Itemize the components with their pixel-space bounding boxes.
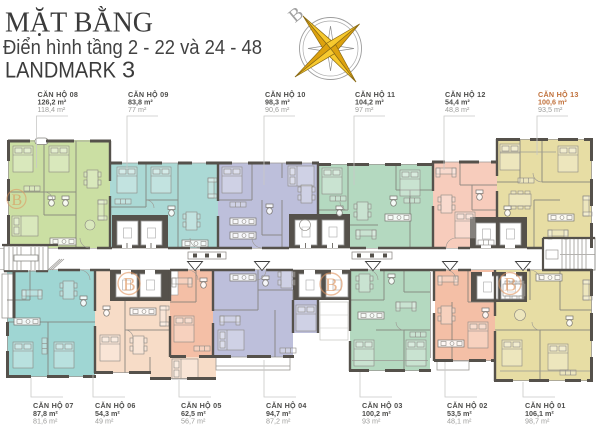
svg-text:B: B <box>325 275 338 296</box>
svg-text:93,5 m²: 93,5 m² <box>538 105 563 114</box>
svg-text:48,1 m²: 48,1 m² <box>447 417 472 426</box>
svg-text:87,2 m²: 87,2 m² <box>266 417 291 426</box>
svg-text:118,4 m²: 118,4 m² <box>38 105 66 114</box>
svg-text:93 m²: 93 m² <box>362 417 381 426</box>
svg-text:81,6 m²: 81,6 m² <box>33 417 58 426</box>
svg-text:98,7 m²: 98,7 m² <box>525 417 550 426</box>
svg-text:B: B <box>285 3 308 27</box>
svg-text:B: B <box>123 275 136 296</box>
svg-text:48,8 m²: 48,8 m² <box>445 105 470 114</box>
svg-text:77 m²: 77 m² <box>128 105 147 114</box>
svg-text:3: 3 <box>122 57 135 83</box>
svg-text:90,6 m²: 90,6 m² <box>265 105 290 114</box>
svg-text:LANDMARK: LANDMARK <box>5 58 116 83</box>
svg-text:B: B <box>12 192 23 209</box>
svg-text:MẶT BẰNG: MẶT BẰNG <box>5 5 153 39</box>
svg-text:49 m²: 49 m² <box>95 417 114 426</box>
svg-text:56,7 m²: 56,7 m² <box>181 417 206 426</box>
svg-text:97 m²: 97 m² <box>355 105 374 114</box>
svg-text:B: B <box>504 275 517 296</box>
